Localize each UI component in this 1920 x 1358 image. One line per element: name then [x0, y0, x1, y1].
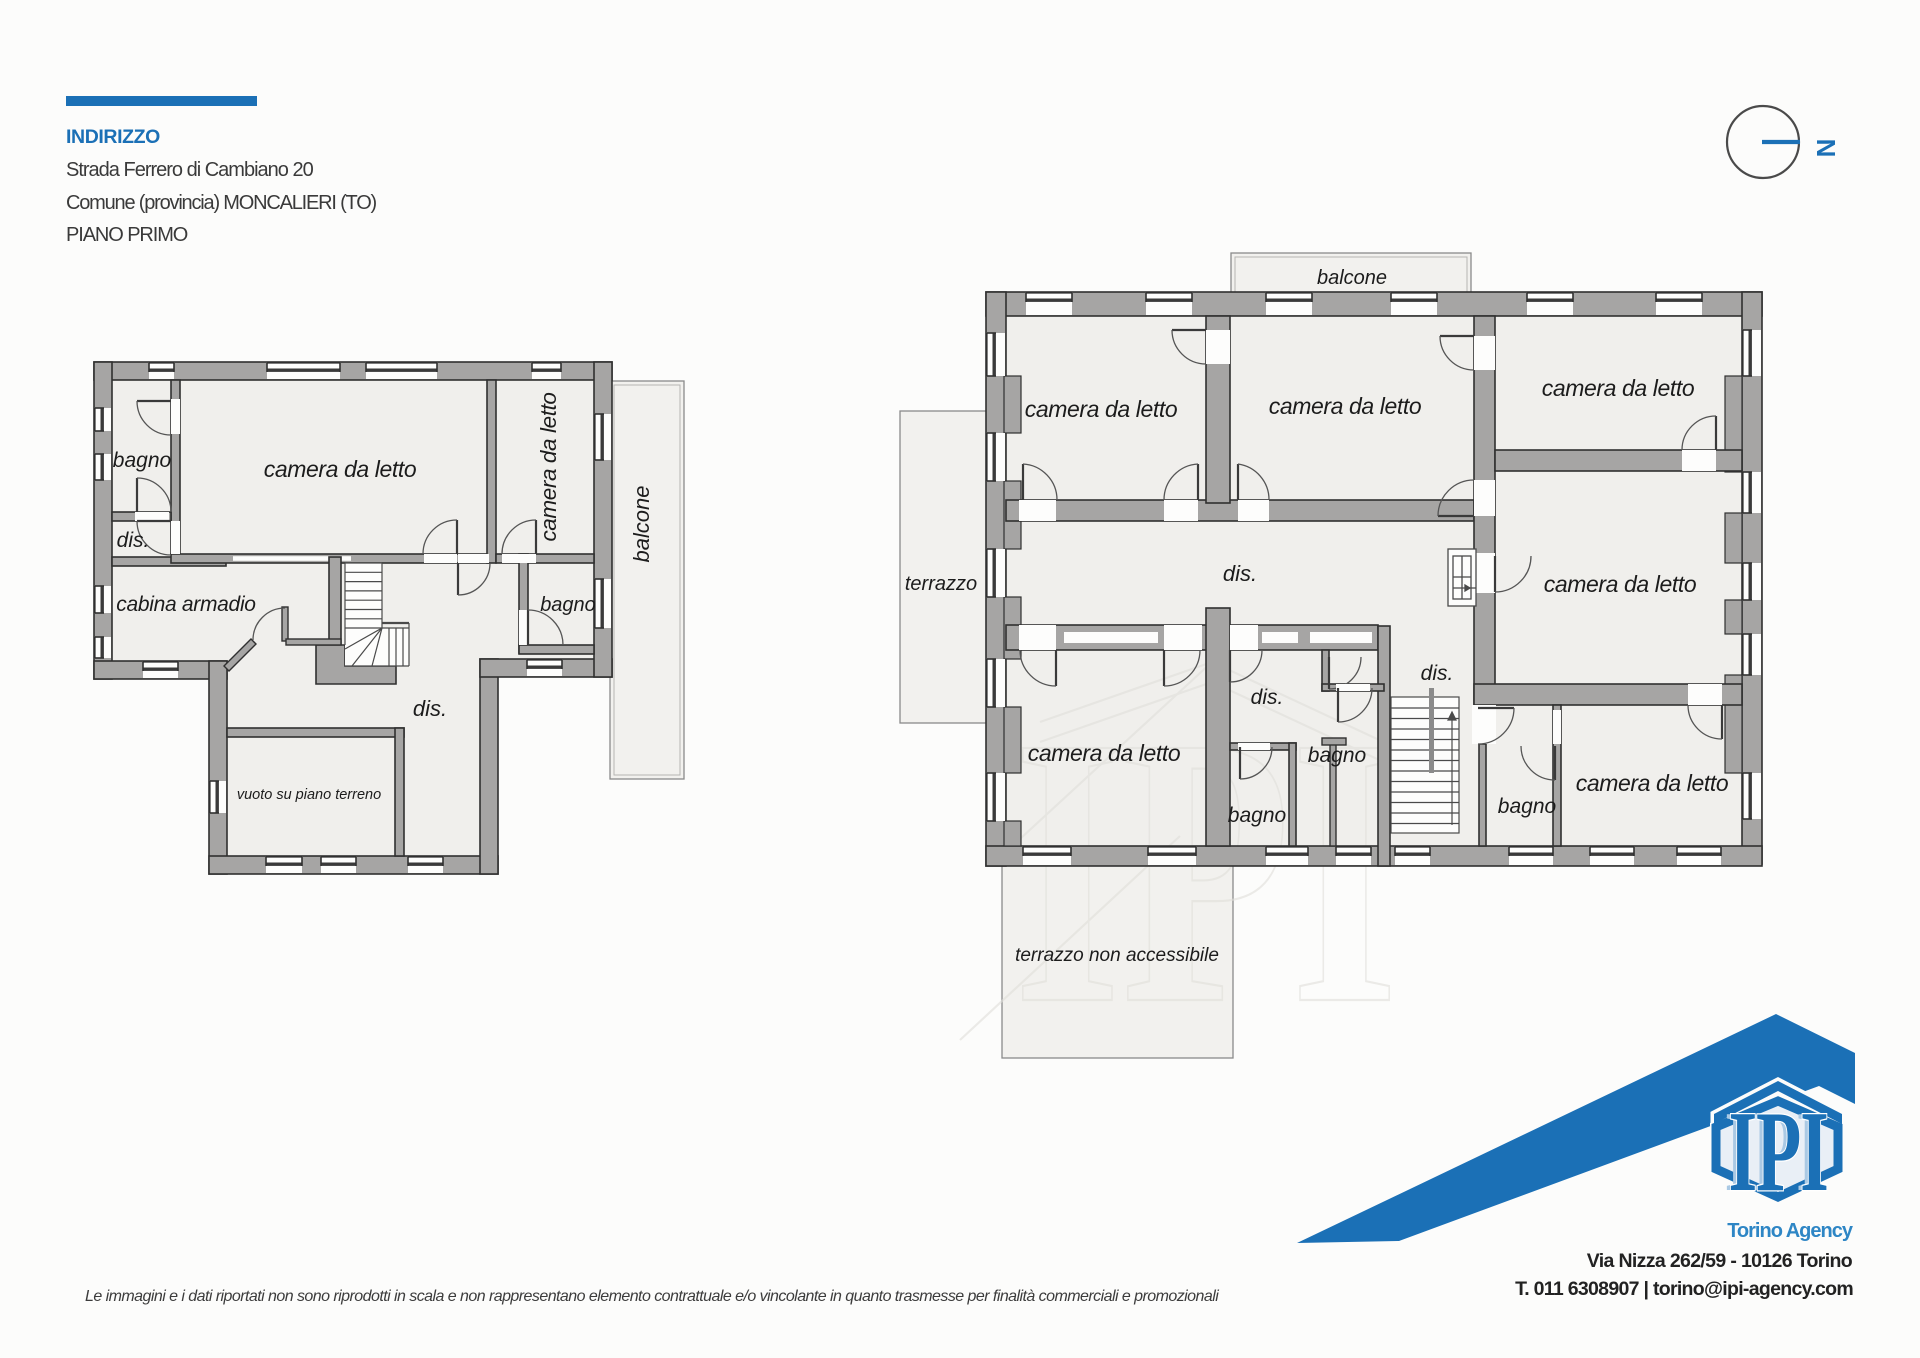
svg-text:bagno: bagno: [1228, 804, 1287, 827]
svg-text:balcone: balcone: [629, 485, 654, 562]
svg-text:terrazzo non accessibile: terrazzo non accessibile: [1015, 945, 1219, 966]
svg-text:vuoto su piano terreno: vuoto su piano terreno: [237, 787, 381, 803]
svg-text:camera da letto: camera da letto: [1028, 740, 1181, 766]
svg-text:bagno: bagno: [540, 594, 596, 616]
svg-text:camera da letto: camera da letto: [264, 456, 417, 482]
svg-text:IPI: IPI: [1728, 1088, 1827, 1217]
svg-text:dis.: dis.: [1251, 686, 1284, 709]
svg-text:Comune (provincia) MONCALIERI: Comune (provincia) MONCALIERI (TO): [66, 192, 377, 214]
svg-text:dis.: dis.: [1223, 561, 1257, 586]
svg-text:balcone: balcone: [1317, 267, 1387, 289]
svg-text:T. 011 6308907 | torino@ipi-ag: T. 011 6308907 | torino@ipi-agency.com: [1515, 1278, 1853, 1300]
svg-text:INDIRIZZO: INDIRIZZO: [66, 126, 160, 148]
svg-text:camera da letto: camera da letto: [1544, 571, 1697, 597]
svg-text:camera da letto: camera da letto: [1576, 770, 1729, 796]
svg-text:Torino Agency: Torino Agency: [1727, 1220, 1854, 1242]
svg-text:dis.: dis.: [117, 529, 150, 552]
svg-text:bagno: bagno: [113, 449, 172, 472]
svg-text:dis.: dis.: [413, 696, 447, 721]
svg-text:PIANO PRIMO: PIANO PRIMO: [66, 224, 188, 246]
svg-text:bagno: bagno: [1308, 744, 1367, 767]
svg-text:terrazzo: terrazzo: [905, 573, 977, 595]
svg-text:bagno: bagno: [1498, 795, 1557, 818]
svg-text:N: N: [1811, 139, 1841, 158]
svg-text:cabina armadio: cabina armadio: [116, 593, 256, 616]
svg-text:camera da letto: camera da letto: [536, 392, 561, 541]
svg-text:Le immagini e i dati riportati: Le immagini e i dati riportati non sono …: [85, 1288, 1219, 1305]
svg-text:camera da letto: camera da letto: [1025, 396, 1178, 422]
svg-text:Strada Ferrero di Cambiano 20: Strada Ferrero di Cambiano 20: [66, 159, 314, 181]
svg-text:Via Nizza 262/59 - 10126 Torin: Via Nizza 262/59 - 10126 Torino: [1587, 1250, 1853, 1272]
svg-text:camera da letto: camera da letto: [1269, 393, 1422, 419]
svg-text:dis.: dis.: [1421, 662, 1454, 685]
svg-text:camera da letto: camera da letto: [1542, 375, 1695, 401]
